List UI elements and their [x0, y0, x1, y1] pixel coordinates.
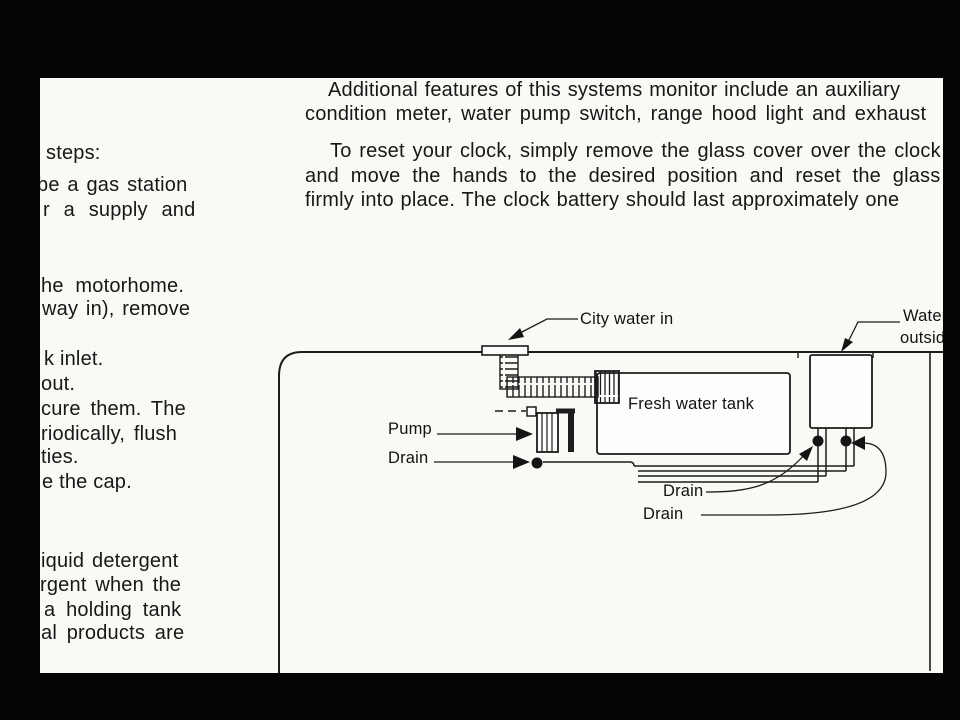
hose-coupler — [595, 371, 619, 403]
left-col-line: riodically, flush — [41, 423, 177, 446]
fresh-water-tank-shape — [597, 373, 790, 454]
left-col-line: way in), remove — [42, 298, 190, 321]
left-col-line: e the cap. — [42, 471, 132, 494]
left-col-line: al products are — [41, 622, 184, 645]
water-heater-shape — [810, 355, 872, 428]
pump-drain-valve-dot — [532, 458, 543, 469]
drain-arrowhead — [513, 455, 530, 469]
left-col-line: cure them. The — [41, 398, 186, 421]
left-col-line: out. — [41, 373, 75, 396]
left-col-line: a holding tank — [44, 599, 181, 622]
heater-drain-valve-dot-right — [841, 436, 852, 447]
supply-hose-horizontal — [507, 377, 598, 397]
water-outside-leader-line — [847, 322, 900, 344]
city-water-leader-line — [518, 319, 578, 334]
label-water-outside-line1: Water — [903, 307, 943, 325]
label-fresh-water-tank: Fresh water tank — [628, 395, 754, 413]
pipe-runs — [634, 466, 854, 482]
pump-arrowhead — [516, 427, 533, 441]
city-water-inlet — [482, 346, 528, 355]
pump-fitting-square — [527, 407, 536, 416]
heater-pipes — [818, 428, 854, 482]
left-col-line: he motorhome. — [41, 275, 184, 298]
right-col-line: condition meter, water pump switch, rang… — [305, 103, 926, 126]
right-col-line: firmly into place. The clock battery sho… — [305, 189, 899, 212]
scanned-manual-screenshot: { "page": { "background": "#050505", "pa… — [0, 0, 960, 720]
right-col-line: Additional features of this systems moni… — [328, 79, 900, 102]
drain1-leader-line — [706, 453, 806, 492]
label-drain-2: Drain — [643, 505, 683, 523]
left-col-line: r a supply and — [43, 199, 195, 222]
city-water-arrowhead — [508, 328, 524, 340]
document-page: steps:be a gas stationr a supply andhe m… — [40, 78, 943, 673]
left-col-line: be a gas station — [40, 174, 187, 197]
left-col-line: ties. — [41, 446, 79, 469]
label-pump: Pump — [388, 420, 432, 438]
right-col-line: To reset your clock, simply remove the g… — [330, 140, 941, 163]
water-outside-arrowhead — [841, 338, 853, 352]
label-city-water-in: City water in — [580, 310, 673, 328]
label-drain-1: Drain — [663, 482, 703, 500]
right-col-line: and move the hands to the desired positi… — [305, 165, 940, 188]
drain2-arrowhead — [851, 436, 865, 450]
left-col-line: rgent when the — [40, 574, 181, 597]
heater-drain-valve-dot-left — [813, 436, 824, 447]
label-water-outside-line2: outside — [900, 329, 943, 347]
left-col-line: iquid detergent — [41, 550, 178, 573]
left-col-line: k inlet. — [44, 348, 103, 371]
drain-pipe-run — [543, 462, 634, 466]
label-drain-pump: Drain — [388, 449, 428, 467]
left-col-line: steps: — [46, 142, 101, 165]
